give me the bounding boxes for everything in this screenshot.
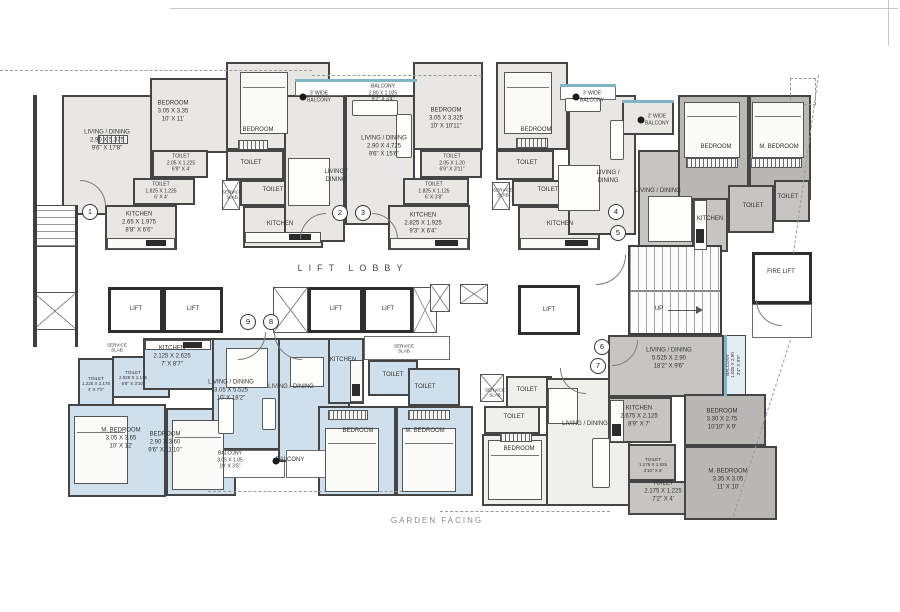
unit2-kitchen-label: KITCHEN [267, 221, 293, 229]
unit3-bedroom-label-line-0: BEDROOM [429, 107, 463, 115]
unit3-toilet-2-label: TOILET1.825 X 1.1256' X 3'8" [418, 181, 449, 201]
service-duct-icon [33, 292, 77, 330]
sofa-icon [218, 398, 234, 434]
rbot-toilet-1-label: TOILET1.175 X 1.8253'10" X 6' [639, 457, 667, 473]
rtop-toilet-1-label-line-0: TOILET [743, 203, 764, 211]
rbot-bedroom-label-line-2: 10'10" X 9' [706, 424, 737, 432]
lift-3-label-line-0: LIFT [330, 306, 342, 314]
rbot-kitchen-label-line-0: KITCHEN [620, 405, 657, 413]
rbot-toilet-1-label-line-2: 3'10" X 6' [639, 468, 667, 473]
bed-icon [325, 428, 379, 492]
unit2-service-slab-label-line-1: SLAB [222, 195, 242, 200]
blueB-mbedroom-label: M. BEDROOM [405, 428, 444, 436]
unit3-kitchen-label-line-1: 2.825 X 1.925 [404, 220, 441, 228]
rbot-mbedroom-label: M. BEDROOM3.35 X 3.0511' X 10' [708, 468, 747, 491]
lift-4-label-line-0: LIFT [382, 306, 394, 314]
blueB-bedroom-label: BEDROOM [342, 428, 373, 436]
blueA-service-slab-label: SERVICESLAB [107, 343, 127, 354]
balcony-2wide-label-line-0: 2' WIDE [645, 114, 669, 121]
rbot-living-label-line-1: 5.525 X 2.90 [646, 355, 692, 363]
unit4-living-label: LIVING /DINING [596, 170, 619, 186]
blueB-kitchen-label: KITCHEN [330, 357, 356, 365]
wardrobe-icon [686, 158, 738, 168]
kitchen-counter-icon [694, 200, 707, 250]
wardrobe-icon [328, 410, 368, 420]
blueA-mbedroom-label-line-2: 10' X 12' [101, 443, 140, 451]
lift-lobby-label-line-0: LIFT LOBBY [298, 263, 409, 275]
service-duct-icon [430, 284, 450, 312]
lift-1-label: LIFT [130, 306, 142, 314]
unit4-kitchen-label-line-0: KITCHEN [547, 221, 573, 229]
floor-plan: LIVING / DINING2.90 X 5.3759'6" X 17'8"B… [0, 0, 900, 612]
pillow-icon [175, 423, 221, 438]
rbot-bedroom-label-line-1: 3.30 X 2.75 [706, 416, 737, 424]
blueA-kitchen-label-line-0: KITCHEN [153, 345, 190, 353]
unit3-living-label: LIVING / DINING2.90 X 4.7259'6" X 15'6" [361, 135, 407, 158]
garden-facing-label: GARDEN FACING [391, 516, 483, 526]
lift-3-label: LIFT [330, 306, 342, 314]
unit4-toilet-1-label-line-0: TOILET [517, 160, 538, 168]
unit7-bedroom-label-line-0: BEDROOM [503, 446, 534, 454]
lift-2-label-line-0: LIFT [187, 306, 199, 314]
unit3-balcony-label-line-2: 9'2" X 3'4" [369, 96, 397, 103]
blueA-toilet-2-label-line-1: 2.025 X 1.175 [119, 375, 147, 380]
pillow-icon [687, 105, 737, 117]
rbot-kitchen-label: KITCHEN2.675 X 2.1258'9" X 7' [620, 405, 657, 428]
balcony-3wide-2-label-line-1: BALCONY [580, 97, 604, 104]
blueA-kitchen-label-line-1: 2.125 X 2.625 [153, 353, 190, 361]
unit-number-marker: 3 [355, 205, 371, 221]
unit3-living-label-line-1: 2.90 X 4.725 [361, 143, 407, 151]
unit3-balcony-label-line-0: BALCONY [369, 83, 397, 90]
blueB-balcony-label: BALCONY [276, 457, 305, 465]
lift-5-label-line-0: LIFT [543, 307, 555, 315]
unit-number-marker: 8 [263, 314, 279, 330]
wall-segment [75, 205, 78, 347]
blueB-toilet-1-label-line-0: TOILET [383, 372, 404, 380]
blueA-bedroom-label-line-1: 2.90 X 3.60 [148, 439, 181, 447]
blueA-kitchen-label-line-2: 7' X 8'7" [153, 361, 190, 369]
blueA-bedroom-label-line-2: 9'6" X 11'10" [148, 447, 181, 455]
dining-table-icon [558, 165, 600, 211]
unit1-toilet-2-label: TOILET1.825 X 1.2256' X 4' [145, 181, 176, 201]
blueB-kitchen-label-line-0: KITCHEN [330, 357, 356, 365]
rtop-toilet-2-label-line-0: TOILET [778, 194, 799, 202]
lift-4-label: LIFT [382, 306, 394, 314]
wardrobe-icon [750, 158, 802, 168]
hob-icon [696, 229, 704, 243]
blueB-balcony-label-line-0: BALCONY [276, 457, 305, 465]
rbot-living-label: LIVING / DINING5.525 X 2.9018'2" X 9'6" [646, 347, 692, 370]
balcony-3wide-1-label-line-1: BALCONY [307, 97, 331, 104]
balcony-2wide-label-line-1: BALCONY [645, 120, 669, 127]
unit4-kitchen-label: KITCHEN [547, 221, 573, 229]
blueA-balcony-label-line-0: BALCONY [217, 450, 243, 457]
rbot-kitchen-label-line-2: 8'9" X 7' [620, 421, 657, 429]
unit3-toilet-2-label-line-2: 6' X 3'8" [418, 194, 449, 201]
blueB-living-label: LIVING / DINING [268, 384, 314, 392]
blueA-balcony-label: BALCONY3.05 X 1.0510' X 3'5" [217, 450, 243, 470]
blueA-kitchen-label: KITCHEN2.125 X 2.6257' X 8'7" [153, 345, 190, 368]
unit2-living-label-line-1: DINING [324, 177, 347, 185]
rbot-mbedroom-label-line-0: M. BEDROOM [708, 468, 747, 476]
balcony-3wide-1-label-line-0: 3' WIDE [307, 91, 331, 98]
blueB-mbedroom-label-line-0: M. BEDROOM [405, 428, 444, 436]
unit-number-marker: 2 [332, 205, 348, 221]
rbot-balcony-label: BALCONY1.025 X 2.903'4" X 9'6" [725, 352, 741, 378]
unit2-kitchen-label-line-0: KITCHEN [267, 221, 293, 229]
blueB-toilet-1-label: TOILET [383, 372, 404, 380]
unit2-living-label-line-0: LIVING / [324, 169, 347, 177]
unit3-bedroom-label-line-2: 10' X 10'11" [429, 123, 463, 131]
wardrobe-icon [238, 140, 268, 150]
rbot-toilet-2-label-line-2: 7'2" X 4' [644, 496, 681, 504]
fire-lift-label: FIRE LIFT [767, 269, 795, 277]
wardrobe-icon [516, 138, 548, 148]
unit1-toilet-2-label-line-2: 6' X 4' [145, 194, 176, 201]
fire-lift-label-line-0: FIRE LIFT [767, 269, 795, 277]
blueB-service-slab-label: SERVICESLAB [394, 344, 414, 355]
wardrobe-icon [408, 410, 450, 420]
unit4-living-label-line-1: DINING [596, 178, 619, 186]
unit3-toilet-1-label-line-2: 6'9" X 3'11" [439, 166, 465, 173]
up-label-line-0: UP [655, 306, 663, 314]
rbot-toilet-2-label-line-1: 2.175 X 1.225 [644, 488, 681, 496]
rbot-toilet-2-label-line-0: TOILET [644, 480, 681, 488]
unit1-living-label: LIVING / DINING2.90 X 5.3759'6" X 17'8" [84, 129, 130, 152]
rbot-balcony-label-line-2: 3'4" X 9'6" [736, 352, 741, 378]
unit3-toilet-1-label: TOILET2.05 X 1.206'9" X 3'11" [439, 153, 465, 173]
blueA-toilet-1-label-line-1: 1.225 X 2.175 [82, 381, 110, 386]
unit3-bedroom-label-line-1: 3.05 X 3.325 [429, 115, 463, 123]
unit7-living-label-line-0: LIVING / DINING [562, 421, 608, 429]
unit1-living-label-line-2: 9'6" X 17'8" [84, 145, 130, 153]
blueA-living-label-line-2: 10' X 18'2" [208, 395, 254, 403]
door-swing-icon [596, 255, 626, 285]
rbot-toilet-2-label: TOILET2.175 X 1.2257'2" X 4' [644, 480, 681, 503]
blueA-bedroom-label-line-0: BEDROOM [148, 431, 181, 439]
unit1-kitchen-label-line-0: KITCHEN [122, 211, 156, 219]
unit1-kitchen-label-line-1: 2.65 X 1.975 [122, 219, 156, 227]
rbot-living-label-line-2: 18'2" X 9'6" [646, 363, 692, 371]
unit-number-marker: 1 [82, 204, 98, 220]
unit2-toilet-1-label: TOILET [241, 160, 262, 168]
balcony-edge-line [295, 79, 417, 82]
unit-number-marker: 7 [590, 358, 606, 374]
lift-lobby-label: LIFT LOBBY [298, 263, 409, 275]
balcony-marker-icon [300, 94, 307, 101]
unit3-balcony-label: BALCONY2.80 X 1.0259'2" X 3'4" [369, 83, 397, 103]
blueA-toilet-2-label: TOILET2.025 X 1.1756'8" X 3'10" [119, 370, 147, 386]
service-duct-icon [273, 287, 308, 333]
blueA-service-slab-label-line-1: SLAB [107, 348, 127, 353]
unit1-kitchen-label-line-2: 8'8" X 6'6" [122, 227, 156, 235]
blueB-toilet-2-label-line-0: TOILET [415, 384, 436, 392]
rbot-balcony-label-line-1: 1.025 X 2.90 [730, 352, 735, 378]
blueA-living-label-line-1: 3.05 X 5.525 [208, 387, 254, 395]
rtop-mbedroom-label: M. BEDROOM [759, 144, 798, 152]
rbot-bedroom-label: BEDROOM3.30 X 2.7510'10" X 9' [706, 408, 737, 431]
blueB-service-slab-label-line-1: SLAB [394, 349, 414, 354]
unit7-toilet-1-label-line-0: TOILET [517, 387, 538, 395]
boundary-dashed-line [0, 70, 312, 71]
hob-icon [146, 240, 166, 246]
dining-table-icon [548, 388, 578, 424]
hob-icon [352, 384, 360, 396]
unit-number-marker: 9 [240, 314, 256, 330]
rbot-bedroom-label-line-0: BEDROOM [706, 408, 737, 416]
balcony-marker-icon [638, 117, 645, 124]
balcony-marker-icon [573, 94, 580, 101]
unit-number-marker: 5 [610, 225, 626, 241]
blueA-toilet-1-label: TOILET1.225 X 2.1754' X 7'2" [82, 376, 110, 392]
unit3-kitchen-label: KITCHEN2.825 X 1.9259'3" X 6'4" [404, 212, 441, 235]
frame-line [888, 0, 889, 45]
unit1-living-label-line-0: LIVING / DINING [84, 129, 130, 137]
blueB-toilet-2-label: TOILET [415, 384, 436, 392]
blueA-mbedroom-label-line-0: M. BEDROOM [101, 427, 140, 435]
unit7-living-label: LIVING / DINING [562, 421, 608, 429]
service-duct-icon [460, 284, 488, 304]
fire-lift [752, 252, 812, 304]
balcony-marker-icon [273, 458, 280, 465]
unit3-kitchen-label-line-2: 9'3" X 6'4" [404, 228, 441, 236]
blueA-mbedroom-label-line-1: 3.05 X 3.65 [101, 435, 140, 443]
blueA-mbedroom-label: M. BEDROOM3.05 X 3.6510' X 12' [101, 427, 140, 450]
unit4-toilet-2-label-line-0: TOILET [538, 187, 559, 195]
unit2-toilet-2-label: TOILET [263, 187, 284, 195]
boundary-dashed-line [312, 75, 482, 76]
unit3-kitchen-label-line-0: KITCHEN [404, 212, 441, 220]
unit7-toilet-2-label-line-0: TOILET [504, 414, 525, 422]
up-label: UP [655, 306, 663, 314]
boundary-dashed-line [440, 511, 610, 512]
kitchen-counter-icon [350, 360, 363, 402]
rtop-bedroom-label: BEDROOM [700, 144, 731, 152]
unit4-bedroom-label: BEDROOM [520, 127, 551, 135]
blueA-living-label-line-0: LIVING / DINING [208, 379, 254, 387]
balcony-3wide-2-label: 3' WIDEBALCONY [580, 91, 604, 104]
unit2-bedroom-label-line-0: BEDROOM [242, 127, 273, 135]
lift-5-label: LIFT [543, 307, 555, 315]
wardrobe-icon [500, 433, 532, 442]
rbot-living-label-line-0: LIVING / DINING [646, 347, 692, 355]
blueB-living-label-line-0: LIVING / DINING [268, 384, 314, 392]
kitchen-counter-icon [390, 238, 468, 249]
kitchen-counter-icon [520, 238, 598, 249]
unit4-bedroom-label-line-0: BEDROOM [520, 127, 551, 135]
unit1-toilet-1-label-line-2: 6'9" X 4' [167, 166, 195, 173]
unit1-toilet-1-label: TOILET2.05 X 1.2256'9" X 4' [167, 153, 195, 173]
unit1-bedroom-label-line-2: 10' X 11' [157, 116, 188, 124]
rbot-kitchen-label-line-1: 2.675 X 2.125 [620, 413, 657, 421]
frame-line [170, 8, 898, 9]
blueA-toilet-1-label-line-2: 4' X 7'2" [82, 387, 110, 392]
unit4-service-slab-label-line-1: SLAB [493, 193, 513, 198]
unit1-bedroom-label: BEDROOM3.05 X 3.3510' X 11' [157, 100, 188, 123]
unit1-living-label-line-1: 2.90 X 5.375 [84, 137, 130, 145]
unit7-toilet-2-label: TOILET [504, 414, 525, 422]
kitchen-counter-icon [107, 238, 175, 249]
projection-dashed-box [790, 78, 816, 105]
unit7-service-slab-label: SERVICESLAB [485, 388, 505, 399]
unit4-toilet-2-label: TOILET [538, 187, 559, 195]
unit7-bedroom-label: BEDROOM [503, 446, 534, 454]
hob-icon [565, 240, 588, 246]
staircase-treads-icon [33, 205, 77, 247]
unit2-toilet-2-label-line-0: TOILET [263, 187, 284, 195]
sofa-icon [592, 438, 610, 488]
blueB-bedroom-label-line-0: BEDROOM [342, 428, 373, 436]
lift-2-label: LIFT [187, 306, 199, 314]
balcony-edge-line [622, 100, 674, 103]
bed-icon [402, 428, 456, 492]
blueA-living-label: LIVING / DINING3.05 X 5.52510' X 18'2" [208, 379, 254, 402]
garden-facing-label-line-0: GARDEN FACING [391, 516, 483, 526]
rtop-kitchen-label-line-0: KITCHEN [697, 216, 723, 224]
balcony-3wide-2-label-line-0: 3' WIDE [580, 91, 604, 98]
unit3-bedroom-label: BEDROOM3.05 X 3.32510' X 10'11" [429, 107, 463, 130]
rtop-bedroom-label-line-0: BEDROOM [700, 144, 731, 152]
pillow-icon [755, 105, 801, 117]
rtop-kitchen-label: KITCHEN [697, 216, 723, 224]
rtop-living-label-line-0: LIVING / DINING [635, 188, 681, 196]
unit1-bedroom-label-line-0: BEDROOM [157, 100, 188, 108]
unit3-living-label-line-2: 9'6" X 15'6" [361, 151, 407, 159]
up-arrow-icon [668, 310, 696, 311]
unit-number-marker: 6 [594, 339, 610, 355]
balcony-2wide-label: 2' WIDEBALCONY [645, 114, 669, 127]
pillow-icon [243, 75, 285, 88]
bed-icon [504, 72, 552, 134]
pillow-icon [507, 75, 549, 88]
wall-segment [33, 95, 37, 347]
balcony-3wide-1-label: 3' WIDEBALCONY [307, 91, 331, 104]
dining-table-icon [290, 357, 324, 387]
unit-number-marker: 4 [608, 204, 624, 220]
rbot-toilet-1-label-line-1: 1.175 X 1.825 [639, 462, 667, 467]
sofa-icon [610, 120, 624, 160]
hob-icon [435, 240, 458, 246]
sofa-icon [262, 398, 276, 430]
unit1-kitchen-label: KITCHEN2.65 X 1.9758'8" X 6'6" [122, 211, 156, 234]
bed-icon [240, 72, 288, 134]
unit2-living-label: LIVING /DINING [324, 169, 347, 185]
unit1-bedroom-label-line-1: 3.05 X 3.35 [157, 108, 188, 116]
balcony-edge-line [560, 84, 616, 87]
rtop-mbedroom-label-line-0: M. BEDROOM [759, 144, 798, 152]
dining-table-icon [648, 196, 692, 242]
rtop-toilet-2-label: TOILET [778, 194, 799, 202]
staircase [628, 245, 722, 335]
blueA-toilet-2-label-line-2: 6'8" X 3'10" [119, 381, 147, 386]
rtop-living-label: LIVING / DINING [635, 188, 681, 196]
blueA-bedroom-label: BEDROOM2.90 X 3.609'6" X 11'10" [148, 431, 181, 454]
unit4-service-slab-label: SERVICESLAB [493, 188, 513, 199]
unit2-bedroom-label: BEDROOM [242, 127, 273, 135]
rbot-mbedroom-label-line-2: 11' X 10' [708, 484, 747, 492]
unit7-service-slab-label-line-1: SLAB [485, 393, 505, 398]
unit7-toilet-1-label: TOILET [517, 387, 538, 395]
unit4-living-label-line-0: LIVING / [596, 170, 619, 178]
unit3-living-label-line-0: LIVING / DINING [361, 135, 407, 143]
rtop-toilet-1-label: TOILET [743, 203, 764, 211]
lift-1-label-line-0: LIFT [130, 306, 142, 314]
unit4-toilet-1-label: TOILET [517, 160, 538, 168]
unit2-toilet-1-label-line-0: TOILET [241, 160, 262, 168]
blueA-balcony-label-line-2: 10' X 3'5" [217, 463, 243, 470]
rbot-mbedroom-label-line-1: 3.35 X 3.05 [708, 476, 747, 484]
unit2-service-slab-label: SERVICESLAB [222, 190, 242, 201]
